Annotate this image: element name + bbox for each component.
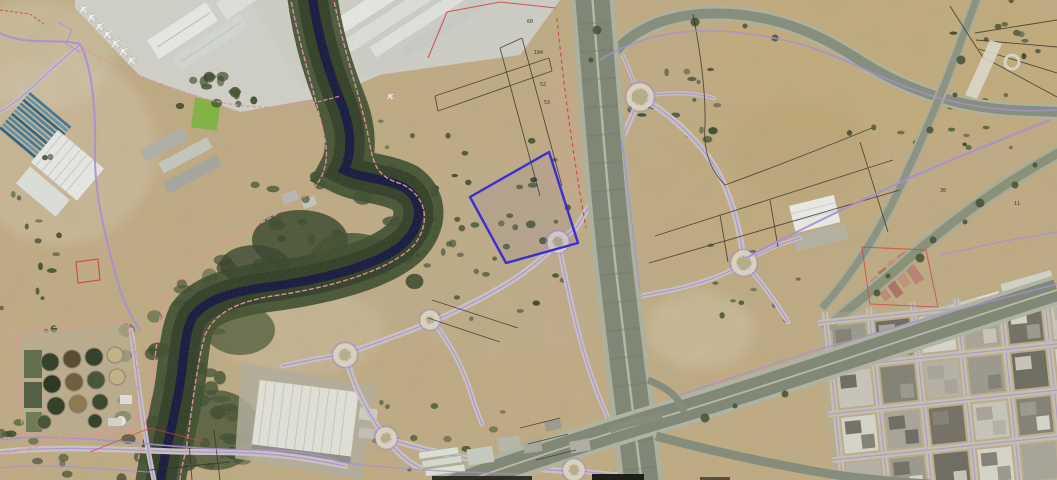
cadastral-aerial-map[interactable]: 60 104 52 53 30 11 — [0, 0, 1057, 480]
map-viewport[interactable]: 60 104 52 53 30 11 — [0, 0, 1057, 480]
parcel-number-label: 52 — [540, 82, 546, 88]
parcel-number-label: 30 — [940, 188, 946, 194]
parcel-number-label: 53 — [544, 100, 550, 106]
parcel-number-label: 104 — [534, 50, 543, 56]
parcel-number-label: 60 — [527, 19, 533, 25]
parcel-number-label: 11 — [1014, 201, 1020, 207]
